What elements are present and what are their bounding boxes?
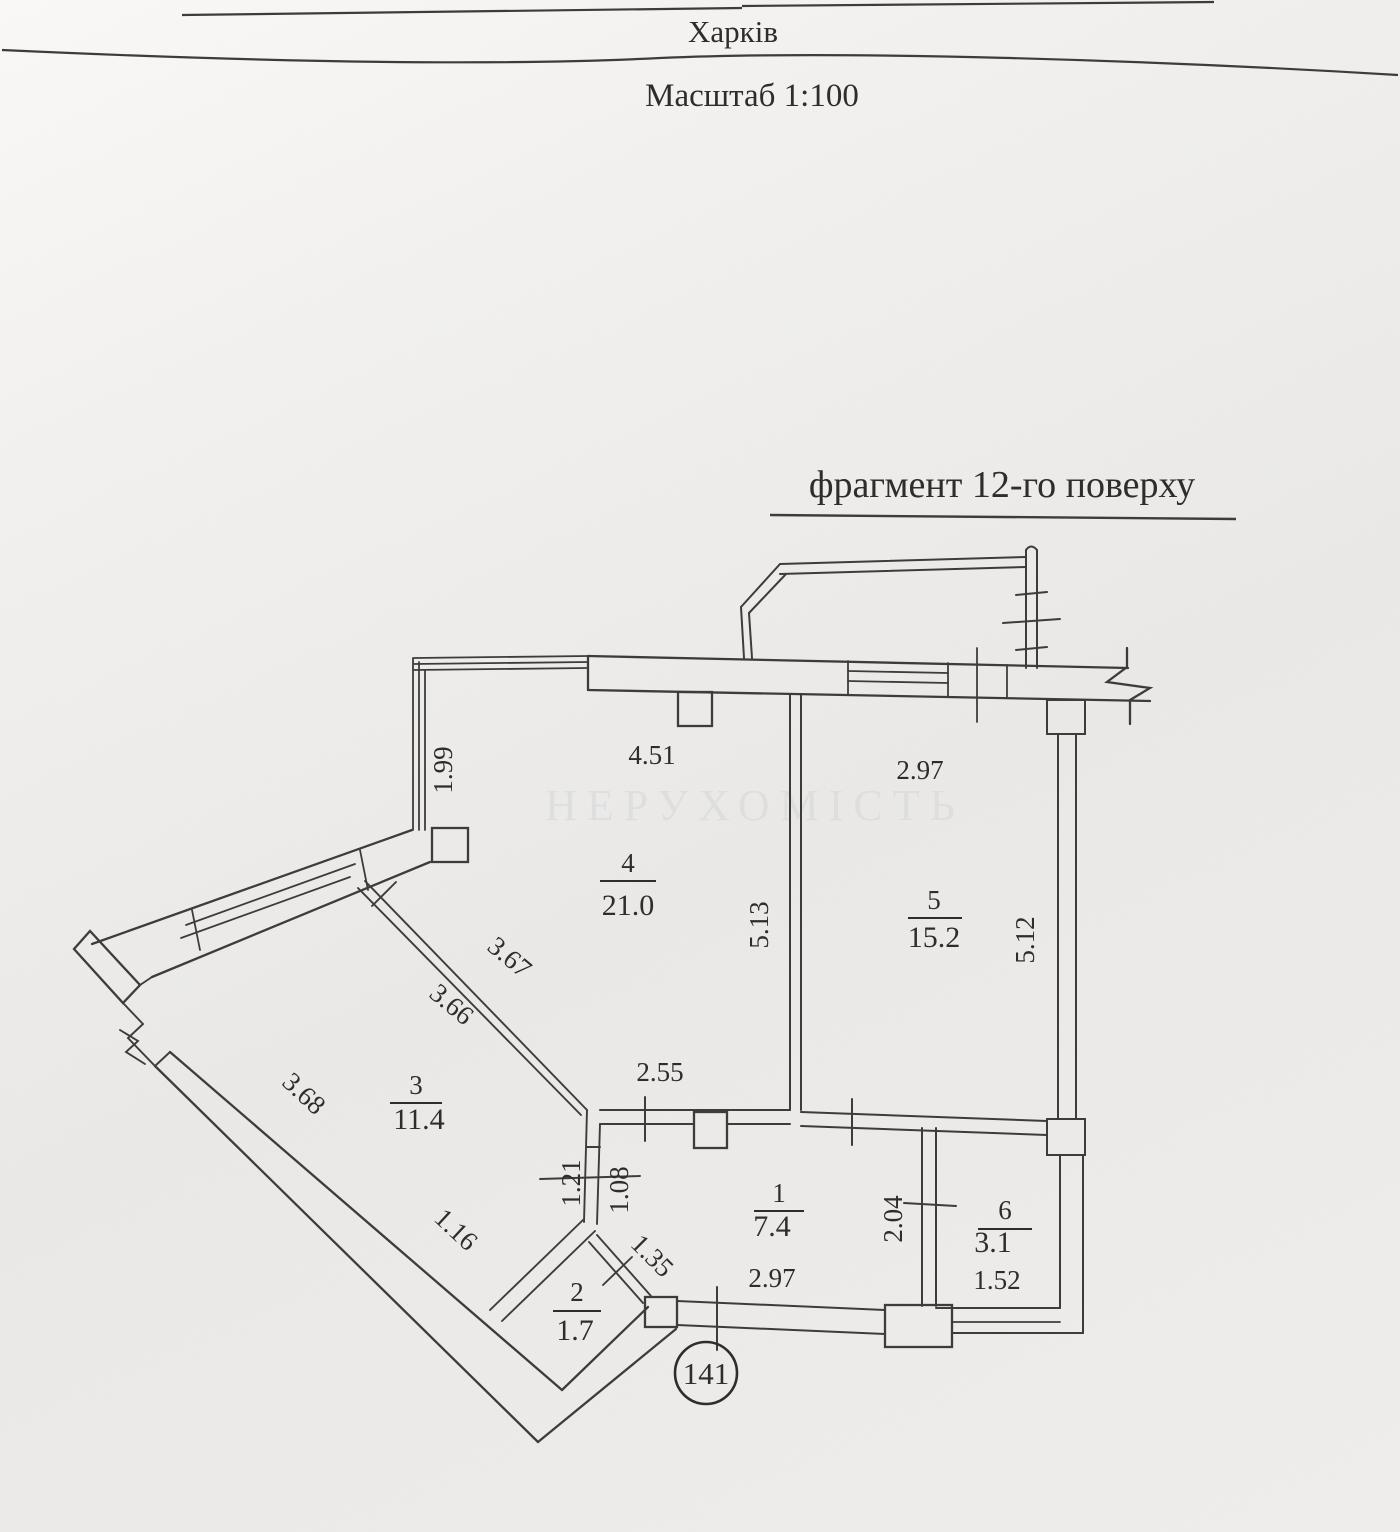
room-number: 6: [998, 1195, 1012, 1225]
room-area: 15.2: [908, 921, 961, 954]
floor-plan-drawing: Харків Масштаб 1:100 фрагмент 12-го пове…: [0, 0, 1400, 1532]
room-number: 3: [409, 1070, 423, 1100]
room-number: 1: [772, 1178, 786, 1208]
dim-label: 2.04: [878, 1195, 908, 1243]
dim-label: 2.55: [636, 1057, 683, 1087]
dim-label: 4.51: [628, 740, 675, 770]
dim-label: 1.99: [428, 746, 458, 793]
dim-label: 5.13: [744, 901, 774, 948]
watermark-text: НЕРУХОМІСТЬ: [545, 781, 965, 830]
scale-label: Масштаб 1:100: [645, 78, 859, 114]
scanned-floor-plan-page: Харків Масштаб 1:100 фрагмент 12-го пове…: [0, 0, 1400, 1532]
apartment-number: 141: [683, 1356, 730, 1391]
room-area: 21.0: [602, 889, 655, 922]
room-area: 11.4: [393, 1103, 444, 1136]
dim-label: 1.21: [556, 1159, 586, 1206]
room-area: 1.7: [556, 1314, 594, 1347]
room-number: 5: [927, 885, 941, 915]
city-label: Харків: [688, 14, 778, 49]
dim-label: 2.97: [896, 755, 943, 785]
dim-label: 2.97: [748, 1263, 795, 1293]
room-number: 4: [621, 848, 635, 878]
dim-label: 1.08: [604, 1166, 634, 1213]
plan-title: фрагмент 12-го поверху: [809, 464, 1195, 506]
dim-label: 5.12: [1010, 916, 1040, 963]
room-number: 2: [570, 1277, 584, 1307]
room-area: 7.4: [753, 1210, 791, 1243]
room-area: 3.1: [974, 1226, 1012, 1259]
dim-label: 1.52: [973, 1265, 1020, 1295]
